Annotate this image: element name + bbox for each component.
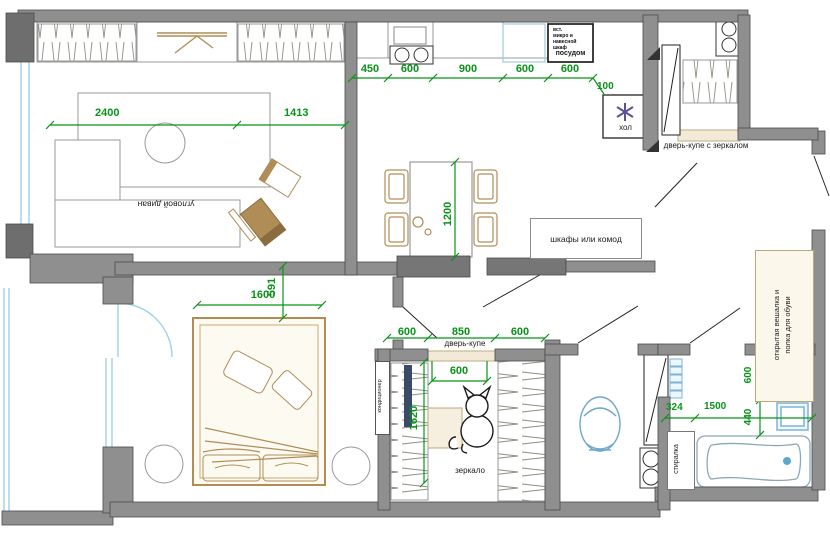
floor-plan-drawing xyxy=(0,0,830,536)
living-room-furniture xyxy=(37,22,345,247)
dim-324: 324 xyxy=(666,403,683,413)
entry-closet-label: дверь-купе с зеркалом xyxy=(645,142,767,151)
open-hanger-label-line1: открытая вешалка и xyxy=(772,252,783,398)
dim-100: 100 xyxy=(597,82,614,92)
dim-ward-600b: 600 xyxy=(500,327,540,338)
hob xyxy=(394,27,426,44)
desk xyxy=(240,198,285,246)
dim-1500: 1500 xyxy=(704,402,726,412)
open-hanger-label: открытая вешалка и полка для обуви xyxy=(772,252,793,398)
ac-label: кондиционер xyxy=(377,361,383,431)
washer-label: стиралка xyxy=(673,432,680,486)
open-hanger-label-line2: полка для обуви xyxy=(783,252,794,398)
dim-600c: 600 xyxy=(550,64,590,75)
wardrobe-hatch-left xyxy=(38,24,136,61)
ward-hatch-right xyxy=(498,360,545,501)
dim-450: 450 xyxy=(350,64,390,75)
dim-600a: 600 xyxy=(390,64,430,75)
coffee-table xyxy=(145,123,185,163)
dim-1600: 1600 xyxy=(238,290,288,301)
bathtub-icon xyxy=(697,436,810,487)
dining-set xyxy=(385,162,497,257)
fridge-label: хол xyxy=(604,124,647,133)
desk-chair xyxy=(259,159,301,197)
nightstand-left xyxy=(145,445,183,483)
cup-icon xyxy=(413,217,423,227)
ward-threshold xyxy=(428,351,495,361)
dim-1413: 1413 xyxy=(284,108,308,119)
toilet-icon xyxy=(580,397,620,451)
dim-1200: 1200 xyxy=(443,191,454,237)
cup-icon-small xyxy=(425,229,431,235)
windows xyxy=(4,62,172,511)
entry-threshold xyxy=(678,130,740,141)
sofa-label: угловой диван xyxy=(120,199,212,208)
floor-plan: угловой диван 2400 1413 450 600 900 600 … xyxy=(0,0,830,536)
toilet-room xyxy=(580,355,668,488)
entry-hatch xyxy=(683,60,737,103)
dim-ward-door-600: 600 xyxy=(439,366,479,377)
wardrobe-hatch-right xyxy=(238,24,344,61)
mirror-label: зеркало xyxy=(438,467,502,476)
dim-2400: 2400 xyxy=(95,108,119,119)
dresser-label-box: шкафы или комод xyxy=(530,218,642,259)
dim-bath-600: 600 xyxy=(744,358,754,392)
washer-label-box xyxy=(667,431,695,490)
dim-591: 591 xyxy=(267,269,278,305)
dining-table xyxy=(410,162,472,257)
dim-440: 440 xyxy=(744,401,754,433)
dim-ward-850: 850 xyxy=(441,327,481,338)
nightstand-right xyxy=(332,447,370,485)
bath-sink-icon xyxy=(777,403,808,430)
dim-1620: 1620 xyxy=(409,388,420,448)
drain-icon xyxy=(783,457,791,465)
cabinet-note: вст. микро и навесной шкаф xyxy=(553,27,576,51)
towel-radiator-icon xyxy=(670,359,682,398)
cabinet-label: посудом xyxy=(549,50,592,58)
sink-icon xyxy=(390,46,433,64)
entry-closet xyxy=(662,18,742,141)
ward-door-label: дверь-купе xyxy=(425,340,505,349)
kitchen-fixtures xyxy=(352,22,648,138)
entry-door-leaf xyxy=(662,45,680,135)
balcony-door-arc xyxy=(118,303,172,357)
dim-600b: 600 xyxy=(505,64,545,75)
dim-900: 900 xyxy=(448,64,488,75)
dim-ward-600a: 600 xyxy=(387,327,427,338)
